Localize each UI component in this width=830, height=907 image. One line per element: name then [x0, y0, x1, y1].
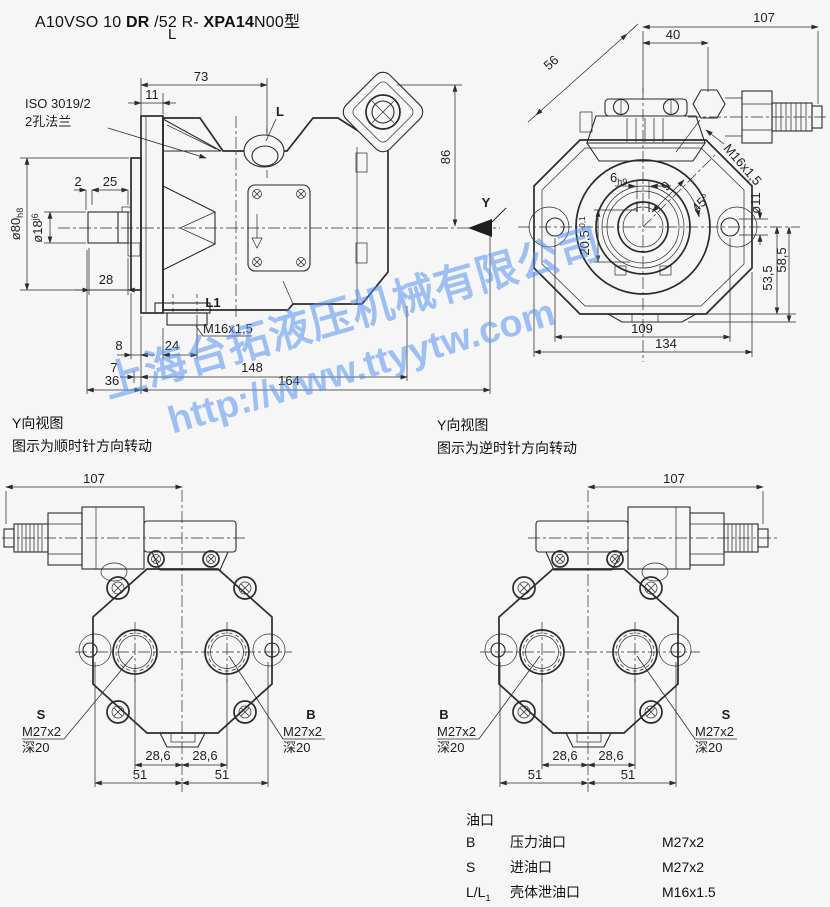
- table-row: S 进油口 M27x2: [466, 858, 716, 883]
- title-seg: N00型: [254, 14, 300, 31]
- table-row: L/L1 壳体泄油口 M16x1.5: [466, 883, 716, 907]
- dim-107: 107: [753, 10, 775, 25]
- cw-port-view: S B M27x2 深20 M27x2 深20 107 28,6 28,6 51…: [2, 471, 325, 792]
- port-size: M16x1.5: [662, 883, 716, 907]
- view-y-arrow-icon: [468, 219, 492, 237]
- port-code: S: [466, 858, 510, 883]
- socket-screws: [107, 577, 256, 723]
- dim-45deg: 45°: [689, 191, 714, 216]
- dim-148: 148: [241, 360, 263, 375]
- swivel-clamp: [580, 99, 705, 161]
- port-b-label: B: [306, 707, 315, 722]
- iso-flange-note2: 2孔法兰: [25, 114, 71, 129]
- depth-s: 深20: [22, 740, 49, 755]
- dim-2: 2: [74, 174, 81, 189]
- mounting-flange: [131, 116, 163, 313]
- dim-24: 24: [165, 338, 179, 353]
- depth-b: 深20: [437, 740, 464, 755]
- port-name: 压力油口: [510, 833, 662, 858]
- dim-key-width: 6h9: [610, 170, 627, 187]
- thread-valve: M16x1,5: [721, 141, 765, 188]
- pump-body: [155, 68, 427, 325]
- drive-shaft: [88, 207, 140, 256]
- port-s-label: S: [722, 707, 731, 722]
- view-y-label: Y: [482, 195, 491, 210]
- title-seg: A10VSO 10: [35, 14, 126, 31]
- caption-line: Y向视图: [437, 414, 577, 437]
- dim-107-ccw: 107: [663, 471, 685, 486]
- thread-b: M27x2: [283, 724, 322, 739]
- title-seg-bold: DR: [126, 14, 150, 31]
- side-view: 73 11 L ISO 3019/2 2孔法兰 ø80h8 ø18j: [8, 68, 506, 394]
- dim-28-6-l: 28,6: [145, 748, 170, 763]
- dim-53-5: 53,5: [760, 265, 775, 290]
- port-name: 壳体泄油口: [510, 883, 662, 907]
- port-l-label: L: [276, 104, 284, 119]
- dim-58-5: 58,5: [774, 247, 789, 272]
- dim-dia11: ø11: [748, 192, 763, 213]
- ccw-view-caption: Y向视图 图示为逆时针方向转动: [437, 414, 577, 460]
- thread-s: M27x2: [695, 724, 734, 739]
- drawing-title-variant: L: [168, 26, 176, 43]
- dim-51-l: 51: [528, 767, 542, 782]
- dim-36: 36: [105, 373, 119, 388]
- dim-28-6-r: 28,6: [192, 748, 217, 763]
- ccw-valve-assembly: [536, 507, 768, 581]
- dim-164: 164: [278, 373, 300, 388]
- port-code: B: [466, 833, 510, 858]
- port-l1-label: L1: [205, 295, 220, 310]
- dim-11: 11: [145, 87, 159, 102]
- port-code: L/L1: [466, 883, 510, 907]
- front-view: 107 40 56 M16x1,5 6h9 9 45°: [518, 10, 828, 362]
- dim-dia18: ø18j6: [30, 213, 45, 242]
- dim-8: 8: [115, 338, 122, 353]
- table-row: B 压力油口 M27x2: [466, 833, 716, 858]
- ccw-port-view: B S M27x2 深20 M27x2 深20 107 28,6 28,6 51…: [437, 471, 780, 792]
- port-b-label: B: [439, 707, 448, 722]
- dim-51-r: 51: [215, 767, 229, 782]
- port-size: M27x2: [662, 858, 716, 883]
- dim-51-r: 51: [621, 767, 635, 782]
- ports-table-title: 油口: [466, 810, 716, 830]
- port-size: M27x2: [662, 833, 716, 858]
- caption-line: Y向视图: [12, 412, 152, 435]
- depth-b: 深20: [283, 740, 310, 755]
- dim-40: 40: [666, 27, 680, 42]
- dim-key-depth: 20,5-0,1: [577, 216, 592, 256]
- cw-valve-assembly: [4, 507, 236, 581]
- cw-dimensions: S B M27x2 深20 M27x2 深20 107 28,6 28,6 51…: [6, 471, 325, 787]
- ccw-dimensions: B S M27x2 深20 M27x2 深20 107 28,6 28,6 51…: [437, 471, 763, 787]
- dim-107-cw: 107: [83, 471, 105, 486]
- cw-view-caption: Y向视图 图示为顺时针方向转动: [12, 412, 152, 458]
- thread-l1: M16x1,5: [203, 321, 253, 336]
- port-s-label: S: [37, 707, 46, 722]
- port-l-boss: [244, 135, 284, 167]
- dim-56: 56: [541, 52, 562, 73]
- dim-28: 28: [99, 272, 113, 287]
- ports-table: 油口 B 压力油口 M27x2 S 进油口 M27x2 L/L1 壳体泄油口 M…: [466, 810, 716, 907]
- dim-109: 109: [631, 321, 653, 336]
- dim-25: 25: [103, 174, 117, 189]
- dim-73: 73: [194, 69, 208, 84]
- dim-28-6-l: 28,6: [552, 748, 577, 763]
- dim-86: 86: [438, 150, 453, 164]
- title-seg: /52 R-: [149, 14, 203, 31]
- caption-line: 图示为逆时针方向转动: [437, 437, 577, 460]
- dim-51-l: 51: [133, 767, 147, 782]
- thread-s: M27x2: [22, 724, 61, 739]
- title-seg-bold: XPA14: [204, 14, 255, 31]
- dim-9: 9: [658, 178, 674, 194]
- thread-b: M27x2: [437, 724, 476, 739]
- dim-dia80: ø80h8: [8, 208, 25, 240]
- dim-134: 134: [655, 336, 677, 351]
- socket-screws: [513, 577, 662, 723]
- front-housing: [529, 90, 822, 322]
- dim-28-6-r: 28,6: [598, 748, 623, 763]
- port-name: 进油口: [510, 858, 662, 883]
- depth-s: 深20: [695, 740, 722, 755]
- caption-line: 图示为顺时针方向转动: [12, 435, 152, 458]
- iso-flange-note: ISO 3019/2: [25, 96, 91, 111]
